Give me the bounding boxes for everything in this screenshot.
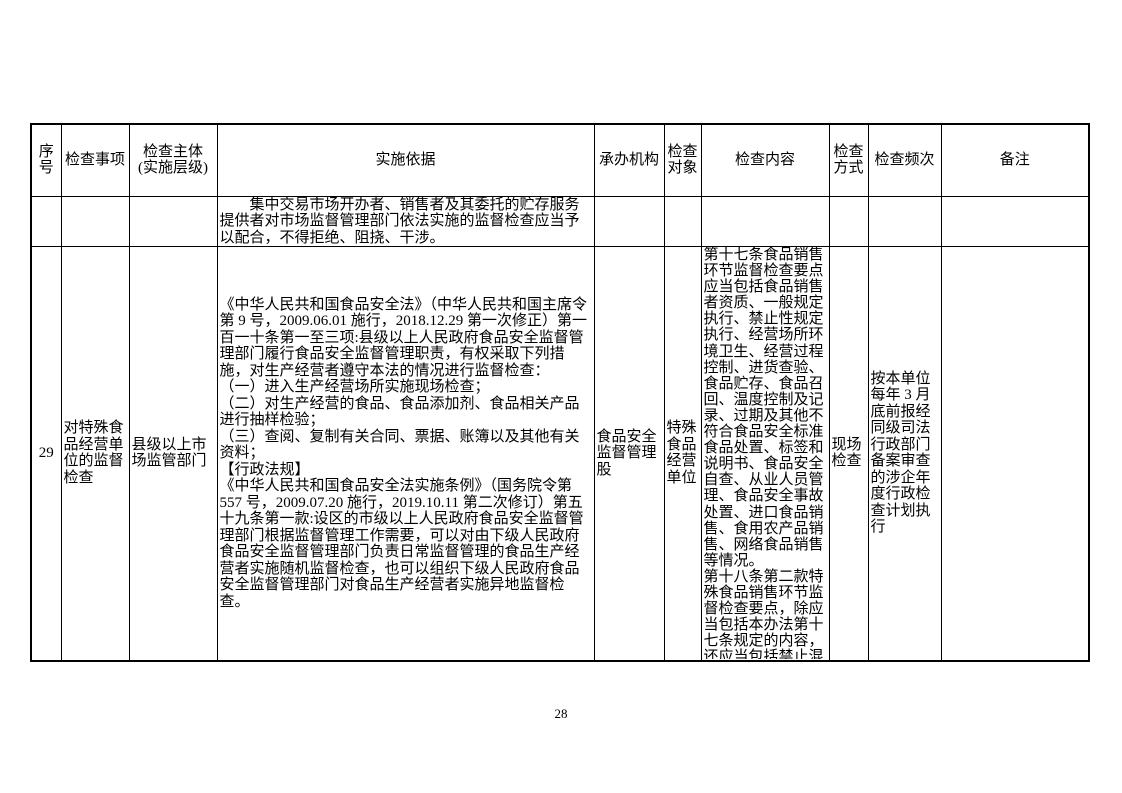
cell-29-frequency: 按本单位每年 3 月底前报经同级司法行政部门备案审查的涉企年度行政检查计划执行 bbox=[868, 247, 941, 661]
header-item: 检查事项 bbox=[61, 124, 129, 196]
header-seq: 序号 bbox=[31, 124, 61, 196]
table-header-row: 序号 检查事项 检查主体 (实施层级) 实施依据 承办机构 检查对象 检查内容 … bbox=[31, 124, 1089, 196]
document-page: 序号 检查事项 检查主体 (实施层级) 实施依据 承办机构 检查对象 检查内容 … bbox=[0, 0, 1122, 793]
header-frequency: 检查频次 bbox=[868, 124, 941, 196]
cell-cont-subject bbox=[129, 196, 217, 247]
content-text: 第十七条食品销售环节监督检查要点应当包括食品销售者资质、一般规定执行、禁止性规定… bbox=[704, 247, 827, 659]
header-remark: 备注 bbox=[941, 124, 1089, 196]
cell-29-item: 对特殊食品经营单位的监督检查 bbox=[61, 247, 129, 661]
cell-cont-basis: 集中交易市场开办者、销售者及其委托的贮存服务提供者对市场监督管理部门依法实施的监… bbox=[217, 196, 594, 247]
inspection-items-table: 序号 检查事项 检查主体 (实施层级) 实施依据 承办机构 检查对象 检查内容 … bbox=[30, 123, 1090, 662]
header-subject: 检查主体 (实施层级) bbox=[129, 124, 217, 196]
cell-cont-target bbox=[664, 196, 701, 247]
cell-cont-item bbox=[61, 196, 129, 247]
cell-29-basis: 《中华人民共和国食品安全法》（中华人民共和国主席令第 9 号，2009.06.0… bbox=[217, 247, 594, 661]
cell-29-method: 现场检查 bbox=[829, 247, 868, 661]
page-number: 28 bbox=[0, 706, 1122, 722]
header-basis: 实施依据 bbox=[217, 124, 594, 196]
header-content: 检查内容 bbox=[701, 124, 829, 196]
cell-29-target: 特殊食品经营单位 bbox=[664, 247, 701, 661]
header-target: 检查对象 bbox=[664, 124, 701, 196]
header-method: 检查方式 bbox=[829, 124, 868, 196]
table-row-29: 29 对特殊食品经营单位的监督检查 县级以上市场监管部门 《中华人民共和国食品安… bbox=[31, 247, 1089, 661]
cell-cont-frequency bbox=[868, 196, 941, 247]
cell-29-subject: 县级以上市场监管部门 bbox=[129, 247, 217, 661]
cell-29-content: 第十七条食品销售环节监督检查要点应当包括食品销售者资质、一般规定执行、禁止性规定… bbox=[701, 247, 829, 661]
cell-cont-method bbox=[829, 196, 868, 247]
cell-cont-remark bbox=[941, 196, 1089, 247]
header-agency: 承办机构 bbox=[594, 124, 664, 196]
cell-29-agency: 食品安全监督管理股 bbox=[594, 247, 664, 661]
cell-cont-seq bbox=[31, 196, 61, 247]
table-row-continuation: 集中交易市场开办者、销售者及其委托的贮存服务提供者对市场监督管理部门依法实施的监… bbox=[31, 196, 1089, 247]
cell-29-remark bbox=[941, 247, 1089, 661]
cell-cont-content bbox=[701, 196, 829, 247]
cell-29-seq: 29 bbox=[31, 247, 61, 661]
cell-cont-agency bbox=[594, 196, 664, 247]
